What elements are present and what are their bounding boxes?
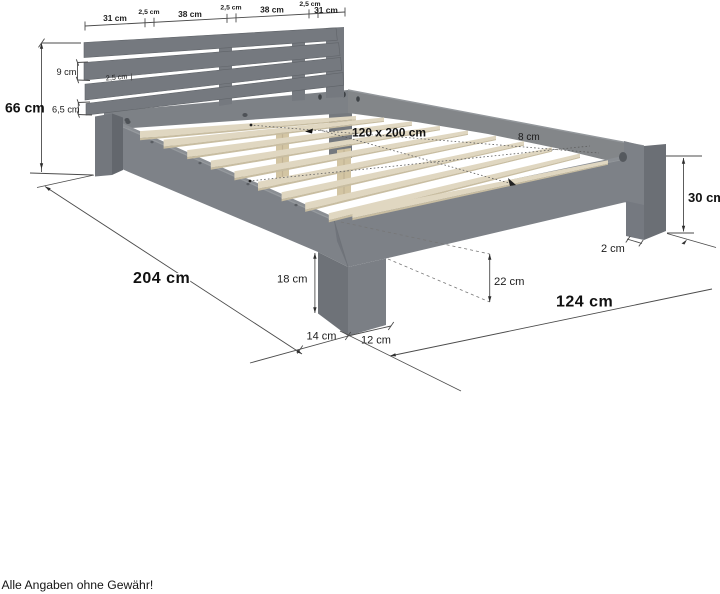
svg-text:14 cm: 14 cm [307, 331, 337, 343]
svg-text:31 cm: 31 cm [103, 13, 127, 23]
svg-text:2,5 cm: 2,5 cm [105, 72, 127, 83]
svg-text:38 cm: 38 cm [260, 5, 284, 15]
svg-text:12 cm: 12 cm [361, 335, 391, 347]
svg-text:66 cm: 66 cm [5, 100, 45, 116]
svg-text:Alle Angaben ohne Gewähr!: Alle Angaben ohne Gewähr! [2, 578, 154, 592]
svg-text:9 cm: 9 cm [57, 67, 77, 77]
svg-text:6,5 cm: 6,5 cm [52, 105, 80, 115]
svg-text:124 cm: 124 cm [556, 294, 613, 311]
svg-text:2 cm: 2 cm [601, 243, 625, 255]
svg-text:30 cm: 30 cm [688, 190, 720, 205]
svg-text:22 cm: 22 cm [494, 276, 524, 288]
svg-text:120 x 200 cm: 120 x 200 cm [352, 126, 426, 140]
svg-text:18 cm: 18 cm [277, 274, 307, 286]
svg-text:204 cm: 204 cm [133, 270, 190, 287]
svg-text:2,5 cm: 2,5 cm [138, 9, 159, 16]
svg-text:38 cm: 38 cm [178, 9, 202, 19]
svg-text:2,5 cm: 2,5 cm [220, 5, 241, 12]
svg-text:31 cm: 31 cm [314, 5, 338, 15]
svg-text:8 cm: 8 cm [518, 132, 540, 143]
